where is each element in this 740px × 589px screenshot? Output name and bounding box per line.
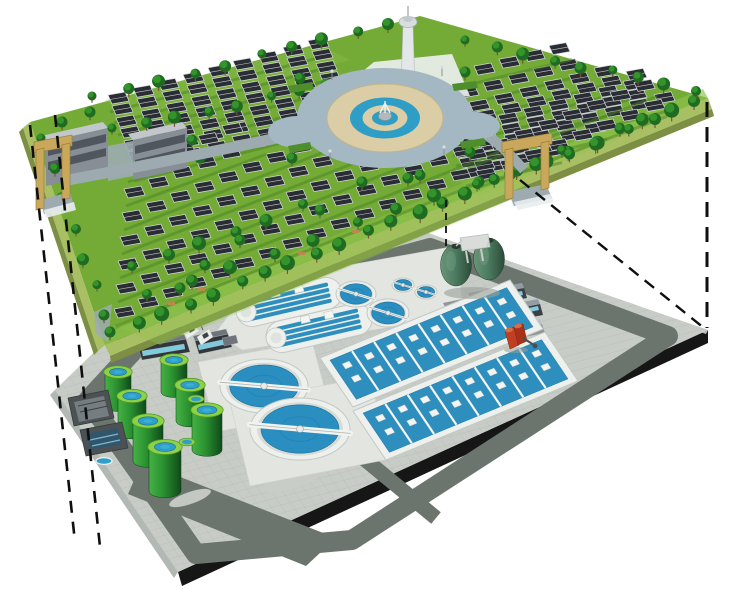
clarifier-pivot [401,283,405,287]
tree-highlight [105,327,112,334]
tree-highlight [530,158,539,167]
east-gate-post-left [505,148,513,200]
tree-highlight [428,189,437,198]
clarifier-pivot [424,290,428,294]
tree-highlight [134,317,142,325]
clarifier-pivot [297,426,304,433]
west-gate-post-right [62,143,70,200]
tree-highlight [224,261,233,270]
tree-highlight [299,199,305,205]
tree-highlight [186,299,193,306]
tree-highlight [124,83,131,90]
tree-highlight [193,237,202,246]
plaza-moat-lobe-east [448,112,500,140]
tree-highlight [354,27,360,33]
west-gate-post-left [36,148,44,210]
tree-highlight [609,66,615,72]
sludge-tank-water-glint [203,408,212,412]
tree-highlight [142,118,149,125]
tree-highlight [637,113,645,121]
clarifier-pivot [386,311,390,315]
digester-shadow [444,287,500,299]
tree-highlight [169,111,177,119]
lamp-head [442,145,445,148]
tree-highlight [281,256,290,265]
tree-highlight [164,249,171,256]
tree-highlight [143,289,149,295]
tree-highlight [78,254,85,261]
tree-highlight [85,107,92,114]
plaza-moat-lobe-west [268,116,328,148]
tree-highlight [57,117,64,124]
tree-highlight [650,113,657,120]
tree-highlight [633,72,640,79]
lamp-head [440,65,443,68]
tree-highlight [460,67,467,74]
tree-highlight [658,78,666,86]
tree-highlight [191,69,197,75]
sludge-tank-water-glint [186,383,194,387]
park-bench [352,230,359,233]
tree-highlight [364,225,371,232]
tree-highlight [385,215,393,223]
tree-highlight [72,224,78,230]
sludge-tank-water-glint [170,358,178,361]
small-clarifier [367,299,409,327]
inlet-pool [96,458,112,465]
red-equipment-arm-end [533,344,538,349]
small-clarifier [392,278,414,292]
digester-egg-sheen [446,251,456,271]
tree-highlight [551,56,557,62]
tree-highlight [93,281,99,287]
tree-highlight [205,107,211,113]
tree-highlight [624,124,630,130]
tree-highlight [287,41,294,48]
tree-highlight [615,123,622,130]
tree-highlight [689,95,696,102]
tree-highlight [383,18,390,25]
tree-highlight [220,61,227,68]
park-bench [298,252,305,255]
tree-highlight [258,50,264,56]
tree-highlight [403,173,410,180]
clarifier-pivot [354,292,358,296]
east-gate-post-right [541,141,549,190]
tree-highlight [207,289,216,298]
tree-highlight [575,62,582,69]
tree-highlight [128,261,134,267]
tree-highlight [99,310,106,317]
tree-highlight [153,75,161,83]
tree-highlight [665,103,674,112]
tower-cap-top [403,16,413,22]
digester-cap [452,244,461,249]
red-equipment-shadow [504,347,528,353]
tree-highlight [565,149,572,156]
sludge-tank-water-glint [144,419,153,423]
tree-highlight [268,92,274,98]
tree-highlight [307,234,315,242]
tree-highlight [200,260,207,267]
tree-highlight [260,214,268,222]
tree-highlight [316,33,324,41]
tree-highlight [287,153,294,160]
tree-highlight [590,138,598,146]
park-bench [168,302,175,305]
tree-highlight [108,124,114,130]
tree-highlight [187,275,194,282]
tree-highlight [50,163,57,170]
tree-highlight [493,42,500,49]
tree-highlight [391,203,398,210]
tree-highlight [415,170,422,177]
tree-highlight [88,92,94,98]
tree-highlight [155,307,164,316]
tree-highlight [231,227,238,234]
park-bench [198,288,205,291]
tree-highlight [235,235,242,242]
large-clarifier [249,398,350,460]
ground-basin-water [182,440,192,445]
tree-highlight [473,179,479,185]
small-clarifier [336,281,376,307]
tree-highlight [692,86,698,92]
tree-highlight [461,36,467,42]
tree-highlight [175,283,182,290]
tree-highlight [489,174,496,181]
tree-highlight [357,177,364,184]
tree-highlight [37,134,43,140]
tree-highlight [333,238,342,247]
tree-highlight [354,217,360,223]
sludge-tank-water-glint [114,370,122,373]
cutaway-scene [0,0,740,589]
tree-highlight [187,135,194,142]
tree-highlight [558,145,564,151]
clarifier-pivot [261,383,268,390]
ground-basin-water [191,397,201,402]
tree-highlight [295,73,302,80]
tree-highlight [459,187,468,196]
tree-highlight [259,266,267,274]
small-clarifier [415,285,437,299]
tree-highlight [315,205,322,212]
lamp-head [330,69,333,72]
tree-highlight [232,101,239,108]
tree-highlight [414,205,423,214]
sludge-tank-water-glint [160,445,170,449]
tree-highlight [517,48,525,56]
tree-highlight [270,249,277,256]
sludge-tank-water-glint [128,394,136,398]
tree-highlight [238,276,245,283]
lamp-head [328,149,331,152]
